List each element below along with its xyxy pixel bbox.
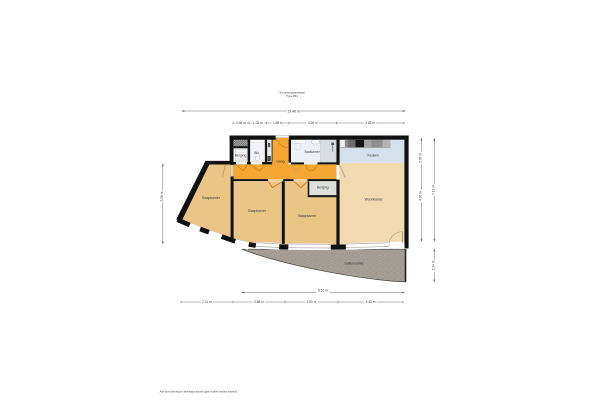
svg-text:Buitenruimte: Buitenruimte xyxy=(344,262,363,266)
svg-text:Type B11: Type B11 xyxy=(286,94,298,98)
svg-text:4.68 m: 4.68 m xyxy=(365,121,375,125)
svg-text:1.08 m: 1.08 m xyxy=(253,121,263,125)
svg-text:2.31 m: 2.31 m xyxy=(202,300,212,304)
svg-text:2.90 m: 2.90 m xyxy=(307,300,317,304)
svg-text:Berging: Berging xyxy=(317,186,329,190)
svg-text:Gang: Gang xyxy=(276,159,284,163)
svg-text:3.28 m: 3.28 m xyxy=(308,121,318,125)
svg-text:Wc: Wc xyxy=(254,151,259,155)
svg-text:1.58 m: 1.58 m xyxy=(273,121,283,125)
svg-text:Aan deze tekening en afmetinge: Aan deze tekening en afmetingen kunnen g… xyxy=(160,390,238,393)
svg-text:Keuken: Keuken xyxy=(367,153,379,157)
svg-text:2.34 m: 2.34 m xyxy=(431,260,435,270)
svg-text:Slaapkamer: Slaapkamer xyxy=(298,214,317,218)
svg-text:Woonkamer: Woonkamer xyxy=(365,198,384,202)
svg-text:6.51 m: 6.51 m xyxy=(318,288,329,292)
svg-text:2.35 m: 2.35 m xyxy=(419,153,423,163)
svg-text:5.58 m: 5.58 m xyxy=(160,191,164,201)
svg-text:4.95 m: 4.95 m xyxy=(419,191,423,201)
svg-text:Badkamer: Badkamer xyxy=(304,150,320,154)
svg-text:0.98 m: 0.98 m xyxy=(236,121,246,125)
svg-text:7.13 m: 7.13 m xyxy=(431,185,435,195)
svg-text:4.40 m: 4.40 m xyxy=(366,300,376,304)
svg-text:Slaapkamer: Slaapkamer xyxy=(248,209,267,213)
svg-text:15.48 m: 15.48 m xyxy=(287,109,299,113)
svg-text:Slaapkamer: Slaapkamer xyxy=(202,196,221,200)
svg-text:Berging: Berging xyxy=(235,154,247,158)
svg-text:2.88 m: 2.88 m xyxy=(254,300,264,304)
